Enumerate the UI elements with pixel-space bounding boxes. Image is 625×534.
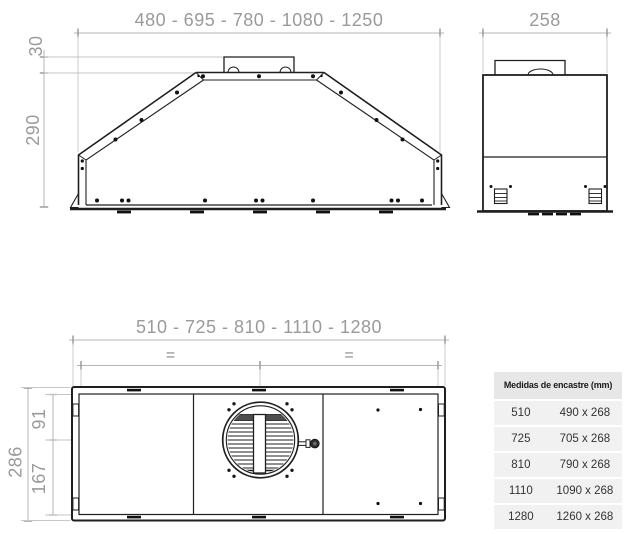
top-rear-depth-label: 167 — [29, 463, 49, 495]
table-body: 510 490 x 268 725 705 x 268 810 790 x 26… — [494, 401, 622, 529]
side-depth-dimension: 258 — [479, 10, 611, 73]
table-cell-cutout: 1260 x 268 — [548, 511, 622, 523]
front-body-height-label: 290 — [23, 114, 43, 146]
table-cell-width: 1280 — [494, 511, 548, 523]
side-baseline-dashes — [528, 213, 581, 216]
front-right-foot — [442, 194, 450, 208]
side-depth-label: 258 — [529, 10, 561, 30]
table-cell-cutout: 790 x 268 — [548, 459, 622, 471]
table-row: 1280 1260 x 268 — [494, 505, 622, 529]
front-duct-height-dimension: 30 — [26, 35, 224, 73]
table-cell-cutout: 1090 x 268 — [548, 485, 622, 497]
top-front-depth-label: 91 — [29, 408, 49, 429]
front-duct-height-label: 30 — [26, 35, 46, 56]
table-row: 1110 1090 x 268 — [494, 479, 622, 505]
table-row: 810 790 x 268 — [494, 453, 622, 479]
front-width-dimension-label: 480 - 695 - 780 - 1080 - 1250 — [135, 10, 384, 30]
front-hood-outline — [70, 73, 450, 214]
technical-drawing-canvas: 480 - 695 - 780 - 1080 - 1250 30 290 — [0, 0, 625, 534]
side-view: 258 — [477, 10, 613, 215]
top-width-dimension-label: 510 - 725 - 810 - 1110 - 1280 — [136, 317, 382, 337]
table-cell-width: 510 — [494, 407, 548, 419]
equal-spacing-symbol-left: = — [166, 347, 175, 364]
front-body-height-dimension: 290 — [23, 73, 48, 207]
table-cell-width: 810 — [494, 459, 548, 471]
table-cell-width: 725 — [494, 433, 548, 445]
equal-spacing-symbol-right: = — [344, 347, 353, 364]
fan-center-bar — [254, 415, 266, 474]
table-cell-width: 1110 — [494, 485, 548, 497]
front-duct — [224, 57, 294, 73]
top-total-depth-label: 286 — [6, 446, 26, 478]
embed-dimensions-table: Medidas de encastre (mm) 510 490 x 268 7… — [494, 372, 622, 529]
front-baseline-dashes — [117, 211, 393, 214]
table-cell-cutout: 705 x 268 — [548, 433, 622, 445]
table-row: 510 490 x 268 — [494, 401, 622, 427]
table-row: 725 705 x 268 — [494, 427, 622, 453]
front-view: 480 - 695 - 780 - 1080 - 1250 30 290 — [23, 10, 450, 213]
top-view: 510 - 725 - 810 - 1110 - 1280 = = 286 91… — [6, 317, 450, 521]
table-cell-cutout: 490 x 268 — [548, 407, 622, 419]
top-width-dimension: 510 - 725 - 810 - 1110 - 1280 — [69, 317, 449, 386]
side-duct — [495, 61, 565, 76]
table-header: Medidas de encastre (mm) — [494, 372, 622, 399]
front-screw-dots — [81, 74, 440, 202]
front-left-foot — [71, 194, 79, 208]
